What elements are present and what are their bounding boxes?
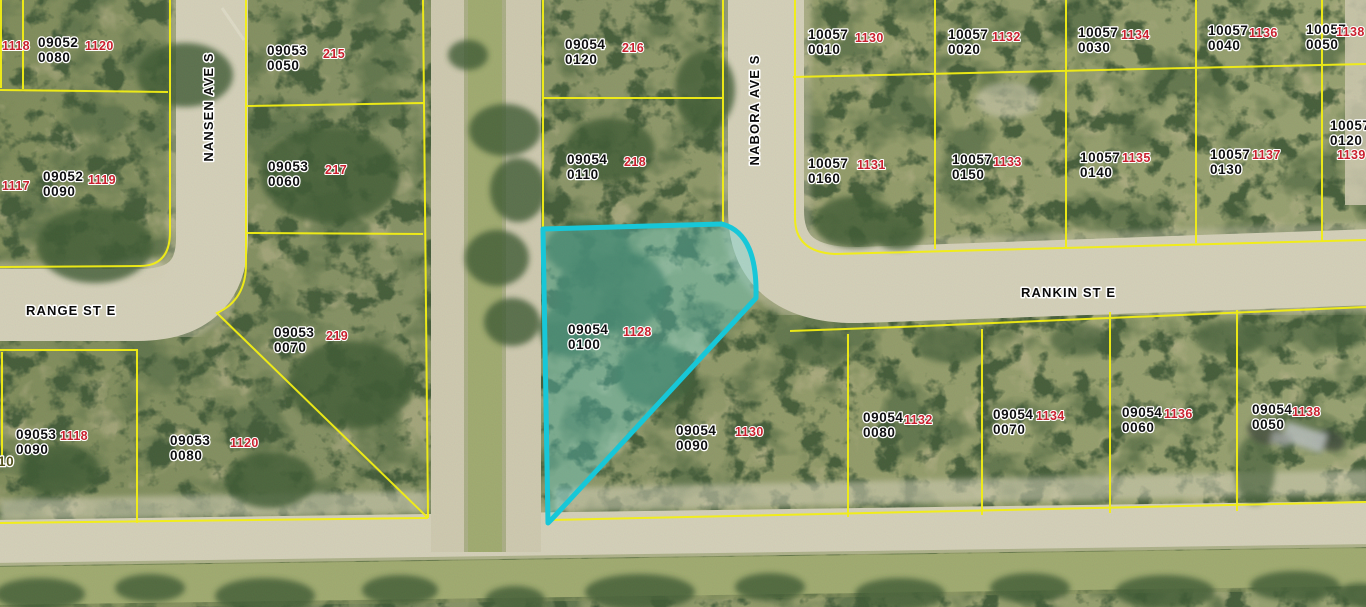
street-label-rankin-st-e: RANKIN ST E [1021,285,1116,300]
parcel-number-1118: 1118 [60,429,88,443]
parcel-number-219: 219 [326,329,348,343]
street-label-range-st-e: RANGE ST E [26,303,116,318]
street-label-nabora-ave-s: NABORA AVE S [747,55,762,166]
parcel-number-1119: 1119 [88,173,116,187]
parcel-number-1120: 1120 [230,436,259,450]
parcel-number-1132: 1132 [904,413,933,427]
parcel-label-10057-0120: 100570120 [1330,118,1366,148]
parcel-number-1131: 1131 [857,158,886,172]
parcel-number-1135: 1135 [1122,151,1151,165]
parcel-number-1139: 1139 [1337,148,1366,162]
edge-parcel-number-1117: 1117 [2,179,30,193]
parcel-number-1136: 1136 [1249,26,1278,40]
parcel-number-1132: 1132 [992,30,1021,44]
map-viewport[interactable]: 0905200801120090530050215090520090111909… [0,0,1366,607]
parcel-number-217: 217 [325,163,347,177]
parcel-number-1138: 1138 [1292,405,1321,419]
parcel-number-1134: 1134 [1036,409,1065,423]
parcel-number-216: 216 [622,41,644,55]
parcel-number-215: 215 [323,47,345,61]
parcel-number-1120: 1120 [85,39,114,53]
parcel-number-1130: 1130 [735,425,764,439]
street-label-nansen-ave-s: NANSEN AVE S [201,52,216,161]
edge-partial-label: 10 [0,454,14,469]
parcel-number-1128: 1128 [623,325,652,339]
parcel-number-218: 218 [624,155,646,169]
parcel-number-1138: 1138 [1336,25,1365,39]
parcel-number-1137: 1137 [1252,148,1281,162]
aerial-parcel-map[interactable]: 0905200801120090530050215090520090111909… [0,0,1366,607]
parcel-number-1130: 1130 [855,31,884,45]
parcel-number-1134: 1134 [1121,28,1150,42]
edge-parcel-number-1118: 1118 [2,39,30,53]
parcel-number-1136: 1136 [1164,407,1193,421]
parcel-number-1133: 1133 [993,155,1022,169]
